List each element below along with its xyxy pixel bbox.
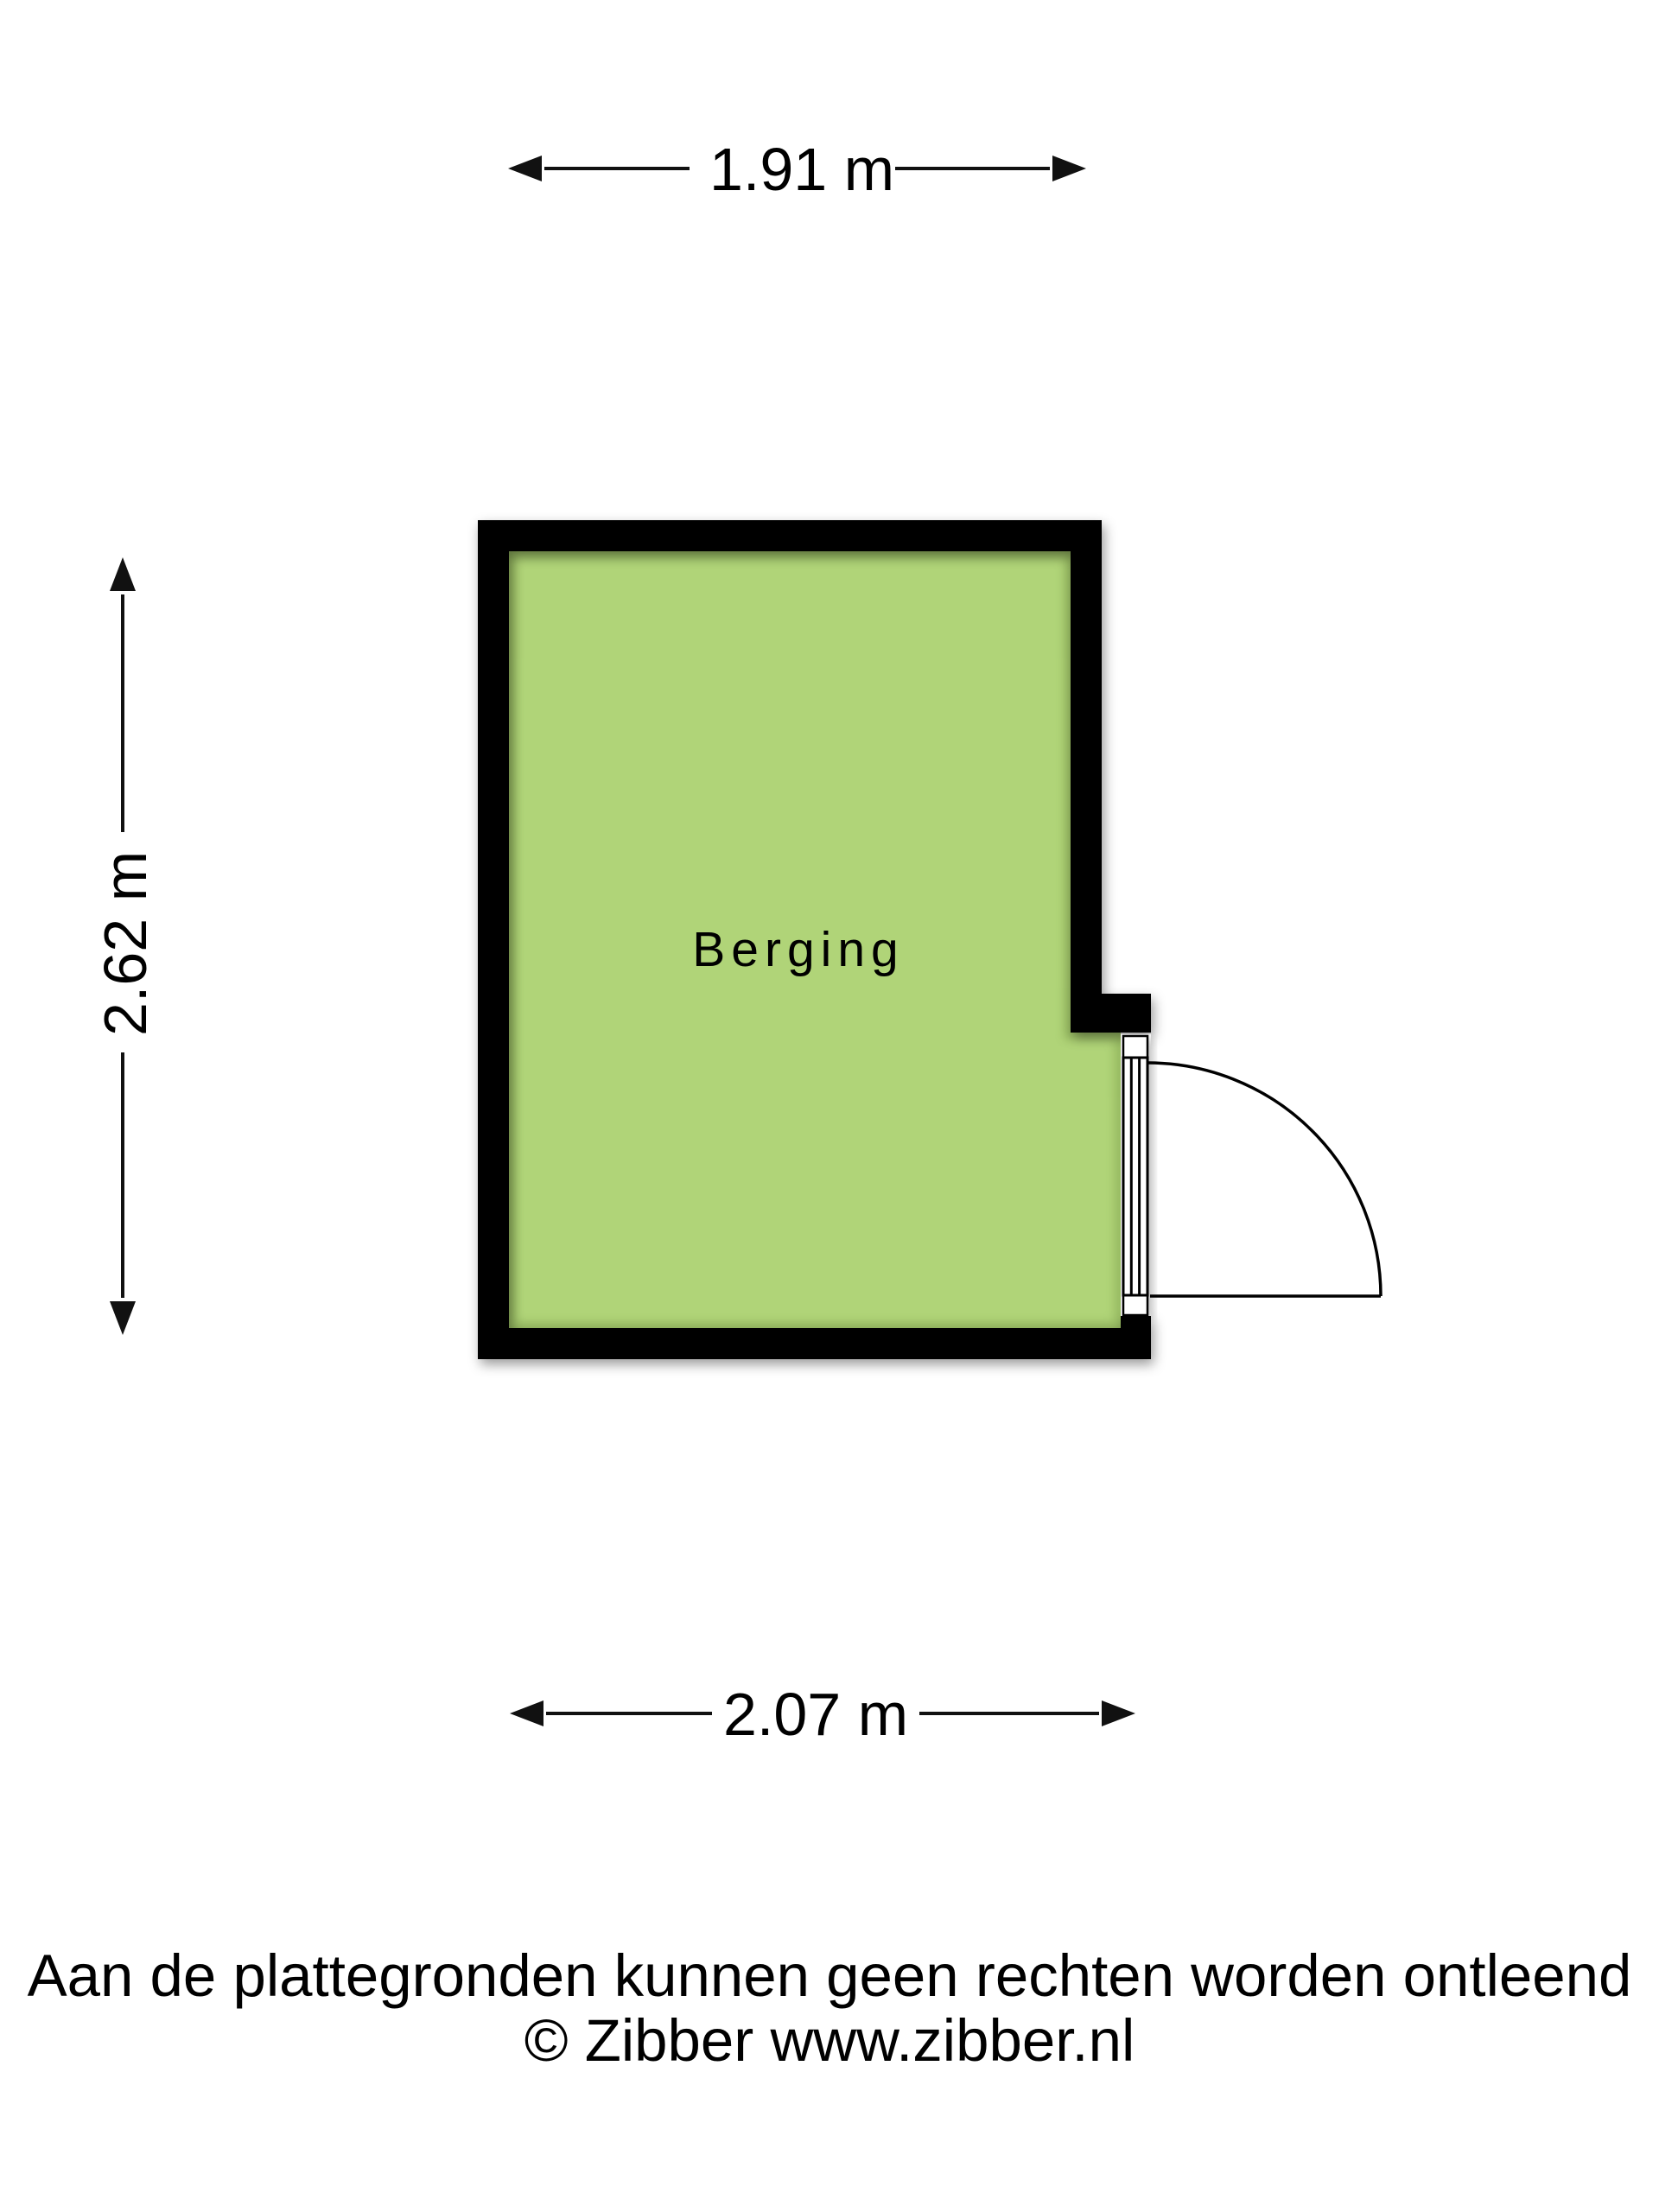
floorplan-drawing: Berging 1.91 m 2.62 m bbox=[0, 0, 1659, 2212]
arrowhead-left-icon bbox=[510, 1700, 543, 1726]
dimension-left-label: 2.62 m bbox=[92, 851, 159, 1036]
footer-disclaimer: Aan de plattegronden kunnen geen rechten… bbox=[28, 1942, 1632, 2009]
wall-left bbox=[478, 520, 509, 1359]
door-swing-arc bbox=[1147, 1063, 1381, 1296]
wall-bottom bbox=[478, 1328, 1151, 1359]
dimension-top-label: 1.91 m bbox=[709, 136, 894, 203]
dimension-left: 2.62 m bbox=[92, 557, 159, 1335]
room-label: Berging bbox=[692, 922, 904, 977]
wall-top bbox=[478, 520, 1102, 551]
dimension-bottom-label: 2.07 m bbox=[723, 1681, 908, 1748]
wall-door-jamb-bottom bbox=[1121, 1316, 1151, 1359]
door bbox=[1121, 1034, 1381, 1316]
arrowhead-left-icon bbox=[508, 156, 542, 181]
door-frame-top bbox=[1123, 1036, 1147, 1058]
dimension-top: 1.91 m bbox=[508, 136, 1086, 203]
floorplan-page: Berging 1.91 m 2.62 m bbox=[0, 0, 1659, 2212]
arrowhead-down-icon bbox=[110, 1301, 136, 1335]
wall-right bbox=[1071, 520, 1102, 1033]
footer: Aan de plattegronden kunnen geen rechten… bbox=[28, 1942, 1632, 2074]
arrowhead-right-icon bbox=[1052, 156, 1086, 181]
wall-step bbox=[1071, 994, 1151, 1033]
arrowhead-up-icon bbox=[110, 557, 136, 591]
footer-copyright: © Zibber www.zibber.nl bbox=[524, 2007, 1135, 2074]
door-frame-group bbox=[1123, 1036, 1147, 1315]
door-frame-bottom bbox=[1123, 1295, 1147, 1315]
dimension-bottom: 2.07 m bbox=[510, 1681, 1135, 1748]
door-leaf bbox=[1123, 1058, 1147, 1295]
arrowhead-right-icon bbox=[1102, 1700, 1135, 1726]
